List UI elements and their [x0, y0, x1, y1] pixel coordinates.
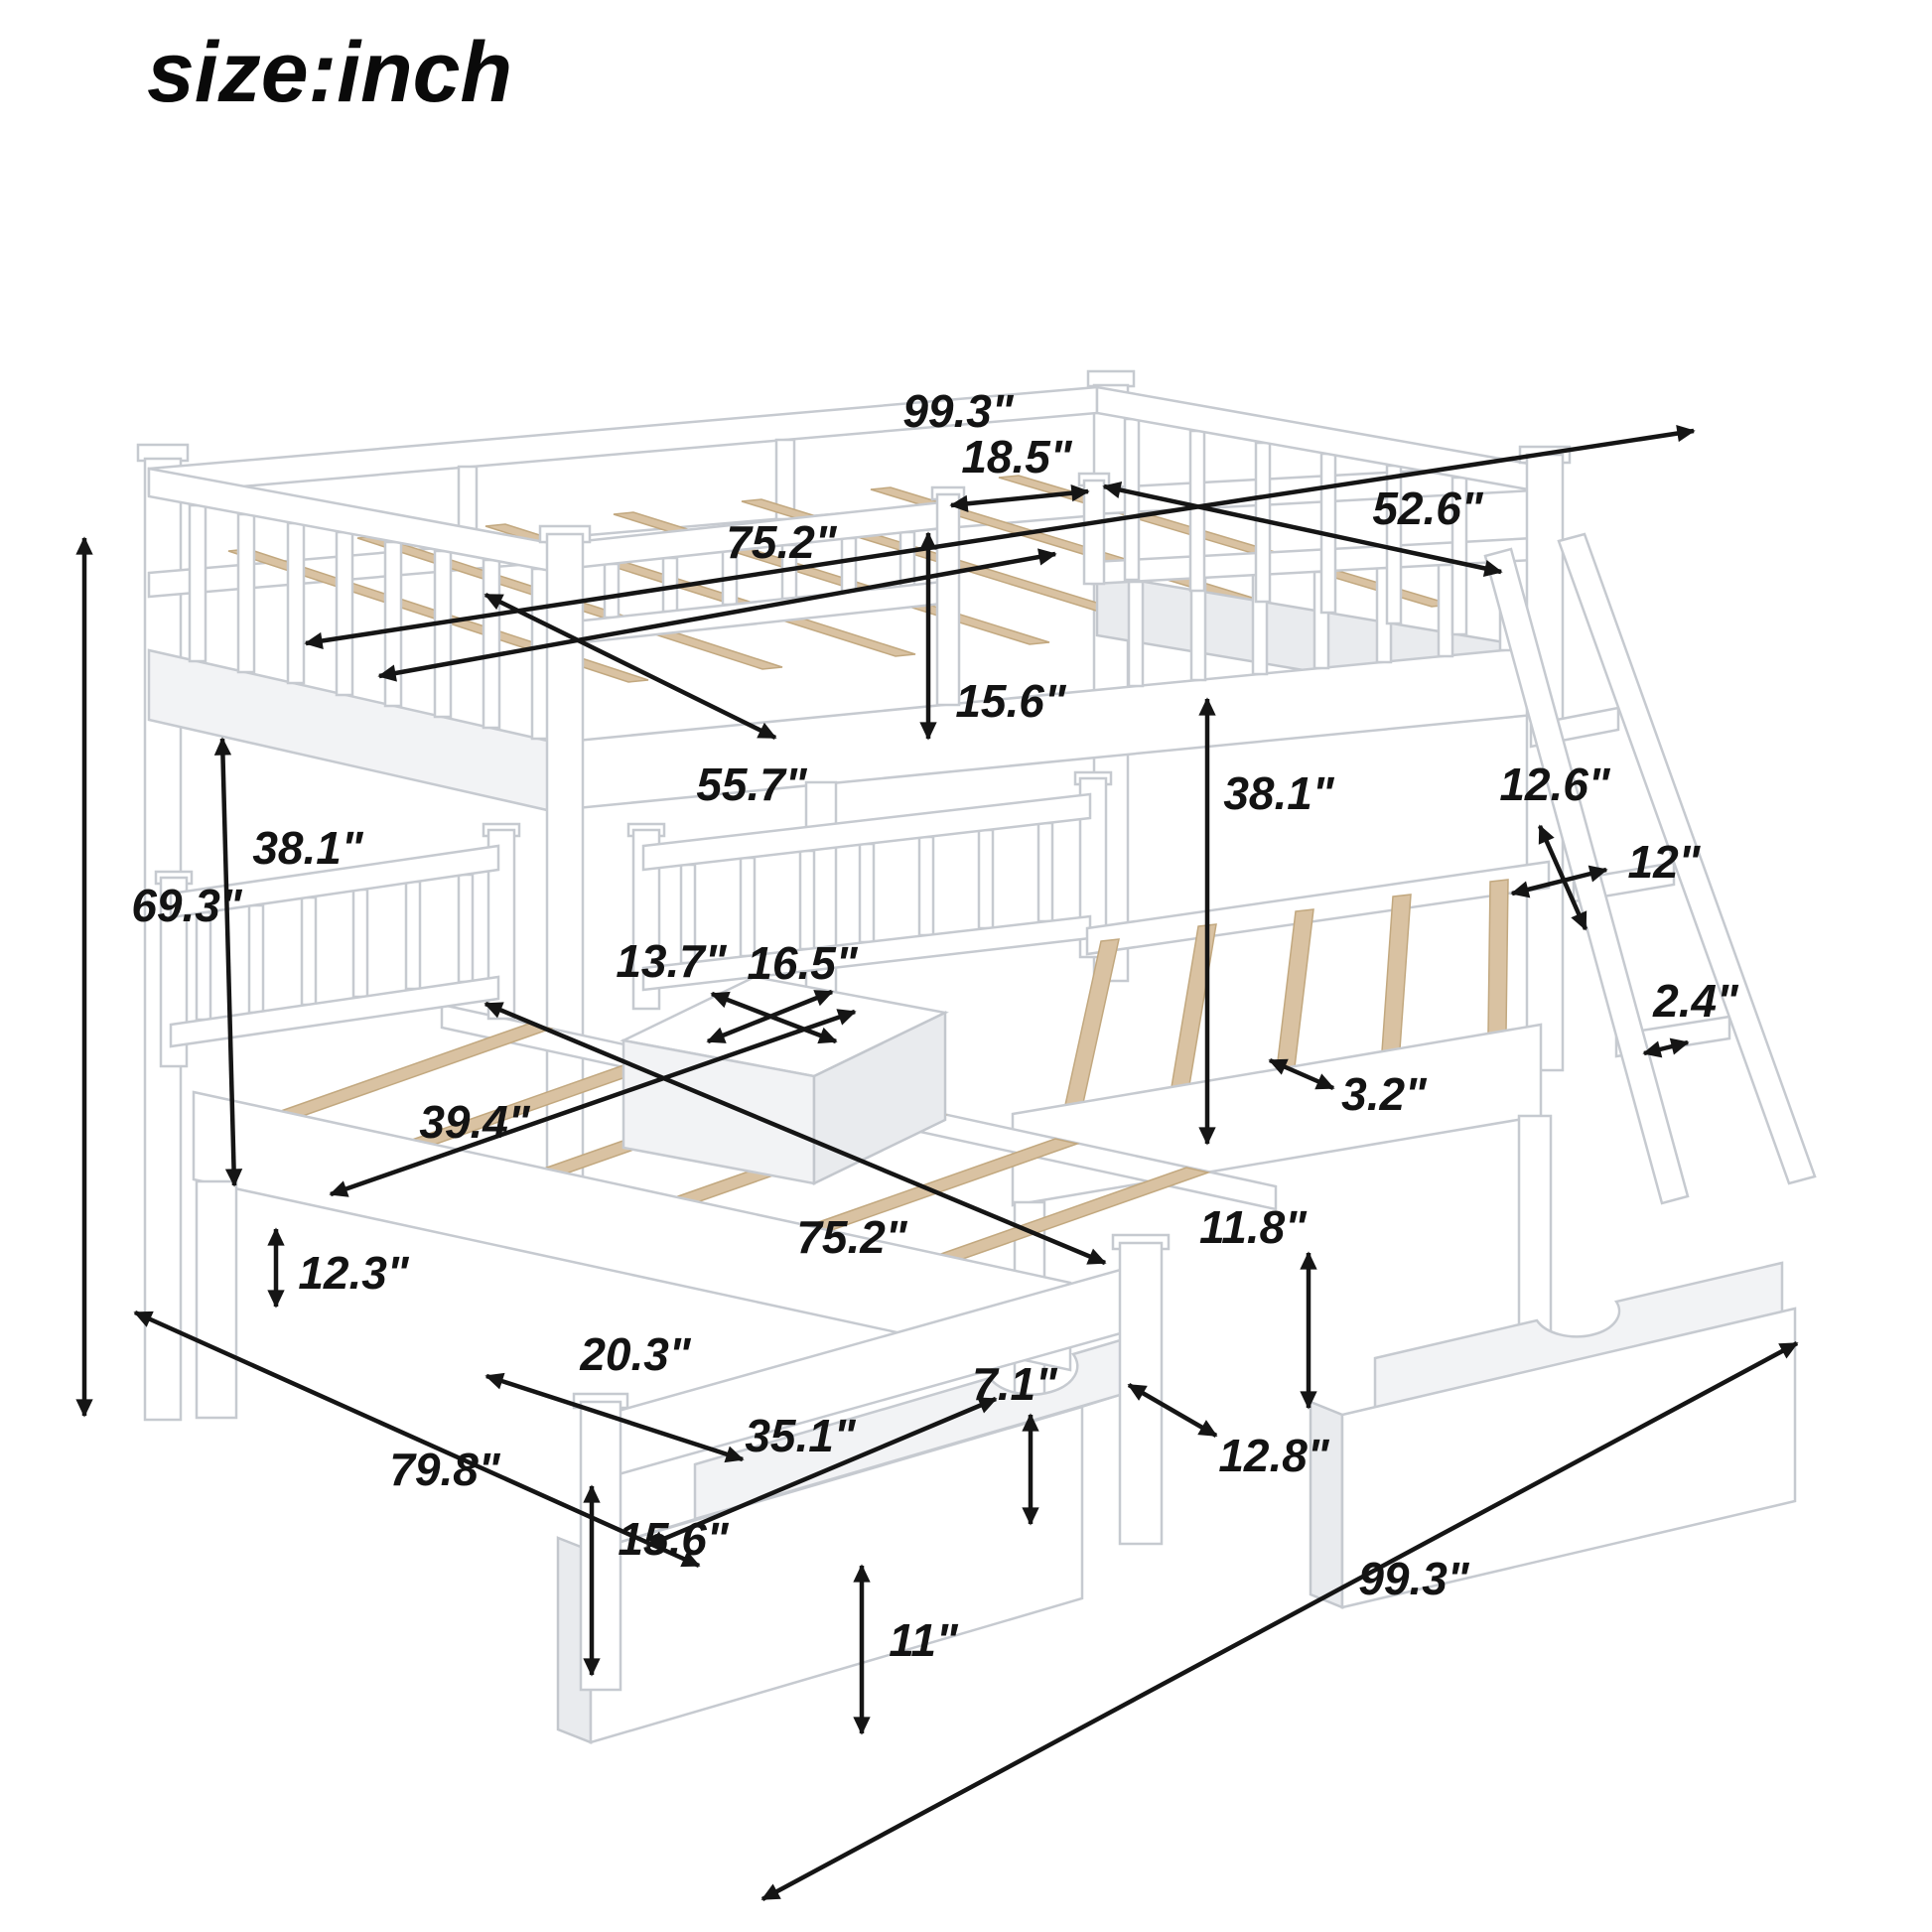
right-twin-back-rail — [1087, 862, 1549, 954]
dim-lower-bed-length-label: 75.2" — [796, 1211, 908, 1263]
dim-drawer-opening-height-label: 7.1" — [972, 1358, 1058, 1410]
dim-ladder-opening-label: 18.5" — [961, 431, 1073, 483]
dim-ladder-width-label: 12" — [1628, 836, 1702, 888]
dim-table-depth-label: 13.7" — [616, 935, 728, 987]
dim-floor-depth-label: 79.8" — [389, 1444, 501, 1495]
dim-clearance-right-label: 38.1" — [1223, 767, 1335, 819]
dim-slat-width-label: 3.2" — [1341, 1068, 1428, 1120]
dim-ladder-rail-thickness-label: 2.4" — [1652, 975, 1739, 1027]
dim-clearance-left-label: 38.1" — [252, 822, 364, 874]
dim-table-width-label: 16.5" — [747, 937, 859, 989]
dim-drawer-space-height-label: 15.6" — [618, 1513, 730, 1565]
dim-top-bed-inner-length-label: 75.2" — [726, 516, 838, 568]
dim-under-bed-clearance-label: 11.8" — [1199, 1201, 1308, 1253]
dim-overall-length-bottom-label: 99.3" — [1358, 1553, 1470, 1604]
bunk-bed-dimension-diagram: size:inch 99.3" 18.5" 52.6" 75.2" 55.7" … — [0, 0, 1932, 1932]
dim-drawer-height-label: 11" — [889, 1614, 959, 1666]
dim-footboard-width-label: 20.3" — [579, 1328, 692, 1380]
dim-under-bed-clearance: 11.8" — [1199, 1201, 1309, 1408]
front-twin-head-leg — [197, 1181, 236, 1418]
dimension-diagram-page: size:inch 99.3" 18.5" 52.6" 75.2" 55.7" … — [0, 0, 1932, 1932]
dim-ladder-step-spacing-label: 12.6" — [1499, 759, 1611, 810]
dim-top-bed-width-label: 52.6" — [1372, 483, 1484, 534]
dim-drawer-length-label: 35.1" — [745, 1410, 857, 1461]
dim-top-bed-inner-width-label: 55.7" — [696, 759, 808, 810]
page-title: size:inch — [147, 25, 512, 120]
dim-lower-frame-height-label: 12.3" — [298, 1247, 410, 1299]
dim-ladder-opening: 18.5" — [951, 431, 1088, 505]
dim-top-frame-depth-label: 15.6" — [955, 675, 1067, 727]
dim-drawer-depth-label: 12.8" — [1218, 1430, 1330, 1481]
dim-lower-bed-width-label: 39.4" — [419, 1096, 531, 1148]
dim-lower-frame-height: 12.3" — [276, 1229, 410, 1307]
dim-overall-length-top-label: 99.3" — [902, 385, 1015, 437]
